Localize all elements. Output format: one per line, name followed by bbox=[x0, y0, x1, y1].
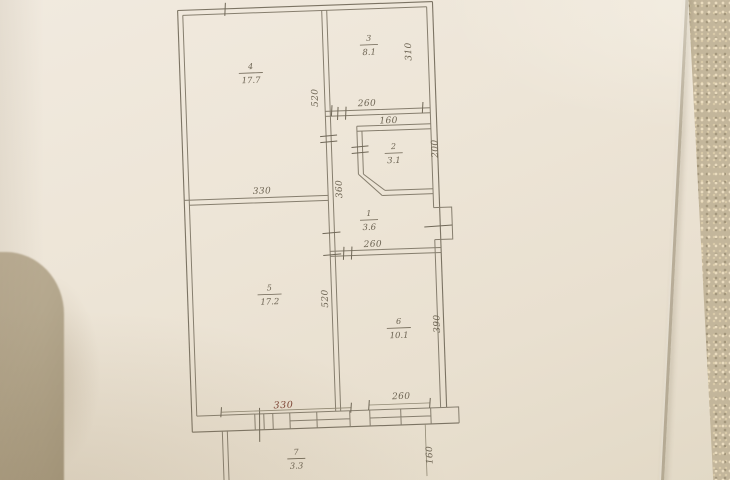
wall-lines bbox=[178, 1, 461, 480]
room-3-area: 8.1 bbox=[362, 48, 376, 58]
dim-room5-width: 330 bbox=[273, 400, 293, 412]
room-3-number: 3 bbox=[366, 34, 371, 43]
room-5-area: 17.2 bbox=[260, 297, 279, 308]
room-6-number: 6 bbox=[396, 317, 401, 326]
room-1-label: 1 3.6 bbox=[360, 209, 379, 234]
dim-hall-width: 260 bbox=[363, 240, 383, 251]
room-2-number: 2 bbox=[390, 142, 396, 151]
dim-room3-width: 260 bbox=[357, 99, 377, 110]
room-1-area: 3.6 bbox=[362, 223, 376, 233]
floor-plan-photo: 4 17.7 3 8.1 2 3.1 1 3.6 5 bbox=[0, 0, 730, 480]
dim-room2-height: 200 bbox=[430, 139, 441, 159]
room-2-label: 2 3.1 bbox=[384, 142, 403, 167]
dim-hall-height: 360 bbox=[335, 180, 346, 199]
dim-room4-width: 330 bbox=[253, 186, 272, 197]
room-4-area: 17.7 bbox=[241, 76, 261, 87]
dim-room2-width: 160 bbox=[379, 116, 398, 127]
room-6-label: 6 10.1 bbox=[386, 317, 411, 342]
dim-room4-height: 520 bbox=[310, 88, 321, 107]
room-2-area: 3.1 bbox=[387, 156, 401, 166]
floor-plan-drawing: 4 17.7 3 8.1 2 3.1 1 3.6 5 bbox=[0, 0, 730, 480]
room-4-number: 4 bbox=[247, 62, 253, 71]
dimension-ticks bbox=[206, 0, 459, 443]
dim-room5-height: 520 bbox=[320, 289, 331, 308]
dim-room6-width: 260 bbox=[391, 392, 411, 403]
room-3-label: 3 8.1 bbox=[360, 34, 379, 59]
room-5-number: 5 bbox=[267, 283, 272, 292]
dim-balcony-height: 160 bbox=[425, 446, 436, 465]
room-1-number: 1 bbox=[366, 209, 371, 218]
room-5-label: 5 17.2 bbox=[257, 283, 282, 308]
dim-room6-height: 390 bbox=[432, 314, 443, 333]
room-7-label: 7 3.3 bbox=[287, 447, 306, 472]
foreign-object bbox=[0, 252, 64, 480]
room-7-number: 7 bbox=[293, 448, 299, 457]
room-4-label: 4 17.7 bbox=[238, 62, 263, 87]
dim-room3-height: 310 bbox=[404, 42, 415, 61]
room-6-area: 10.1 bbox=[389, 331, 408, 342]
room-7-area: 3.3 bbox=[290, 461, 304, 471]
